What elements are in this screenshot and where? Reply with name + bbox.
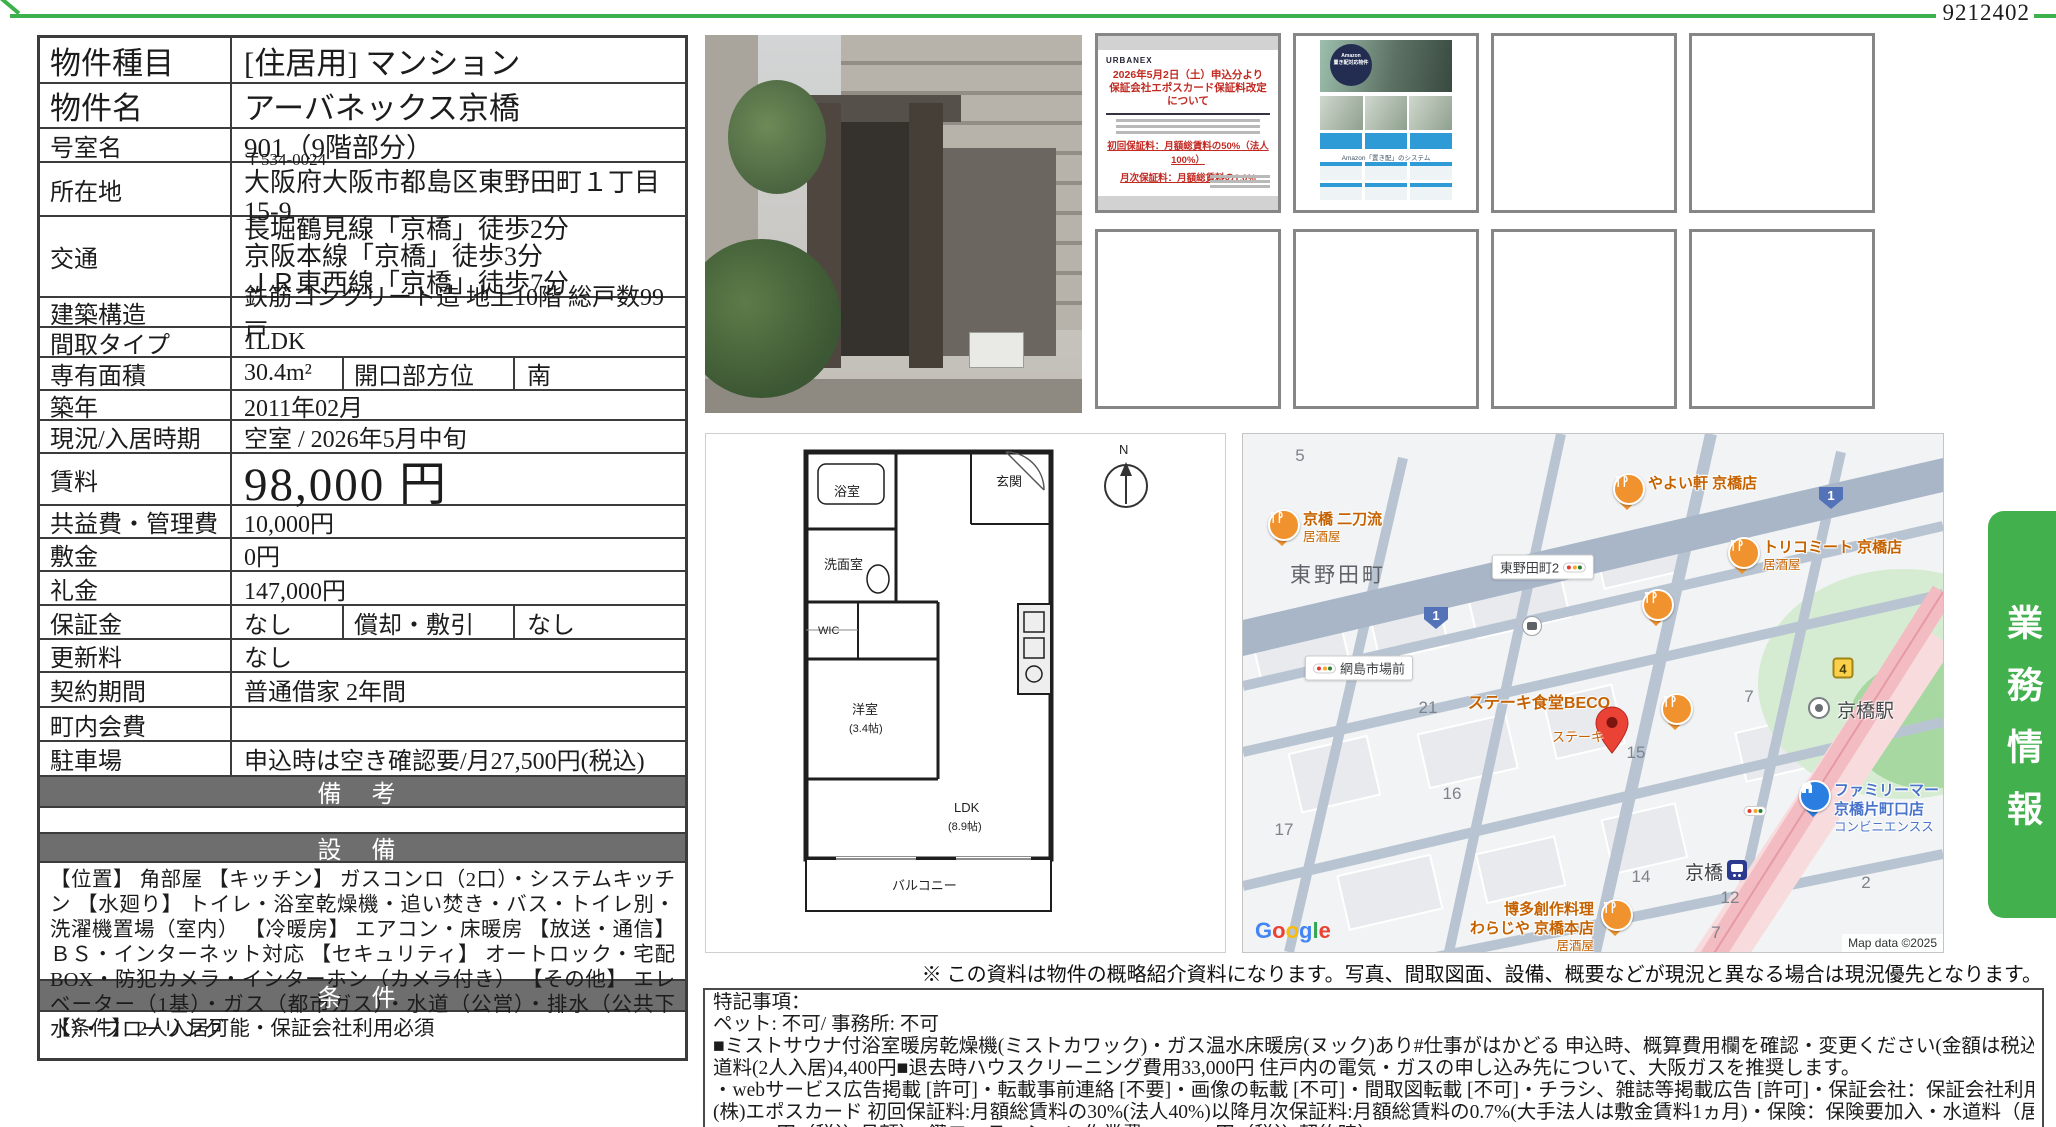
row-label: 礼金 [40,572,232,604]
row-label: 間取タイプ [40,328,232,356]
table-row: 号室名901（9階部分） [40,129,685,163]
poi-label: ファミリーマー京橋片町口店コンビニエンスス [1834,782,1939,835]
expressway-shield: 4 [1833,658,1854,679]
block-number: 5 [1295,446,1304,466]
row-value: [住居用] マンション [232,38,685,82]
traffic-light-icon [1744,806,1767,816]
traffic-light-icon [1563,562,1586,572]
note-line: 道料(2人入居)4,400円■退去時ハウスクリーニング費用33,000円 住戸内… [713,1058,2034,1080]
block-number: 17 [1275,820,1294,840]
thumb-rate-1: 初回保証料：月額総賃料の50%（法人100%） [1106,138,1270,166]
table-row: 更新料なし [40,640,685,673]
row-label: 物件種目 [40,38,232,82]
poi-label: トリコミート 京橋店居酒屋 [1763,539,1902,573]
row-value: 30.4m² [232,358,342,389]
label-room-size: (3.4帖) [849,722,883,735]
table-row: 所在地〒534-0024大阪府大阪市都島区東野田町１丁目15-9 [40,163,685,217]
poi-label: やよい軒 京橋店 [1648,475,1757,494]
bus-icon [1522,616,1542,636]
photo-tree [728,80,826,193]
side-tab-label: 業務情報 [1996,578,2048,852]
thumbnail-empty [1293,229,1479,409]
row-value: 10,000円 [232,506,685,537]
thumb-brand: URBANEX [1106,56,1270,65]
thumbnail-empty [1689,33,1875,213]
route-shield: 1 [1819,487,1843,509]
row-value: なし [232,606,342,638]
map-markers: 5京橋 二刀流居酒屋やよい軒 京橋店1トリコミート 京橋店居酒屋東野田町東野田町… [1243,434,1943,952]
poi-label: 京橋 二刀流居酒屋 [1303,511,1382,545]
row-value-2: 南 [515,358,685,389]
label-balcony: バルコニー [892,878,957,893]
block-number: 15 [1627,743,1646,763]
row-label: 築年 [40,391,232,419]
block-number: 21 [1419,698,1438,718]
district-label: 東野田町 [1290,559,1386,589]
thumbnail-notice-doc: URBANEX 2026年5月2日（土）申込分より 保証会社エポスカード保証料改… [1095,33,1281,213]
traffic-light-icon [1313,663,1336,673]
thumbnail-brochure: Amazon 置き配対応物件 Amazon「置き配」のシステム [1293,33,1479,213]
row-label-2: 償却・敷引 [342,606,515,638]
row-value: なし [232,640,685,671]
row-label: 物件名 [40,84,232,127]
table-row: 築年2011年02月 [40,391,685,421]
restaurant-icon [1642,589,1674,621]
table-row: 町内会費 [40,708,685,742]
table-row: 物件種目[住居用] マンション [40,38,685,84]
postal-code: 〒534-0024 [244,151,326,169]
location-map: 5京橋 二刀流居酒屋やよい軒 京橋店1トリコミート 京橋店居酒屋東野田町東野田町… [1242,433,1944,953]
property-table: 物件種目[住居用] マンション物件名アーバネックス京橋号室名901（9階部分）所… [37,35,688,1061]
compass-n: N [1119,442,1128,457]
row-value: アーバネックス京橋 [232,84,685,127]
row-value: 鉄筋コンクリート造 地上10階 総戸数99戸 [232,298,685,326]
table-row: 【条件】 2人入居可能・保証会社利用必須 [40,1012,685,1058]
thumbnail-empty [1491,33,1677,213]
property-sheet: 9212402 物件種目[住居用] マンション物件名アーバネックス京橋号室名90… [0,0,2056,1127]
special-notes: 特記事項：ペット: 不可/ 事務所: 不可■ミストサウナ付浴室暖房乾燥機(ミスト… [703,988,2044,1127]
row-value: 147,000円 [232,572,685,604]
row-value [232,708,685,740]
accent-line-right [2034,14,2056,18]
row-value: 0円 [232,539,685,570]
google-logo: Google [1255,918,1331,944]
table-row: 間取タイプ1LDK [40,328,685,358]
disclaimer: ※ この資料は物件の概略紹介資料になります。写真、間取図面、設備、概要などが現況… [922,958,2042,987]
restaurant-icon [1601,899,1633,931]
row-value: 98,000 円 [232,454,685,504]
station-icon [1808,697,1830,719]
side-tab-business-info: 業務情報 [1988,511,2056,918]
thumb-title-1: 2026年5月2日（土）申込分より [1106,69,1270,82]
row-value: 2011年02月 [232,391,685,419]
table-row: 保証金なし償却・敷引なし [40,606,685,640]
table-row: 駐車場申込時は空き確認要/月27,500円(税込) [40,742,685,777]
thumbnail-empty [1095,229,1281,409]
row-label: 契約期間 [40,673,232,706]
poi-text: ステーキ食堂BECO [1468,689,1610,713]
block-number: 14 [1632,867,1651,887]
note-line: 特記事項： [713,992,2034,1014]
table-row: 契約期間普通借家 2年間 [40,673,685,708]
row-value: 1LDK [232,328,685,356]
thumbnail-empty [1689,229,1875,409]
block-number: 12 [1721,888,1740,908]
table-row: 【位置】 角部屋 【キッチン】 ガスコンロ（2口）・システムキッチン 【水廻り】… [40,863,685,981]
floor-plan: N 浴室 玄関 洗面室 WIC 洋室 (3.4帖) LDK (8.9帖) バルコ… [705,433,1226,953]
row-label: 保証金 [40,606,232,638]
block-number: 7 [1744,687,1753,707]
row-label: 専有面積 [40,358,232,389]
note-line: ペット: 不可/ 事務所: 不可 [713,1014,2034,1036]
section-bar: 備 考 [40,777,685,808]
accent-corner [0,0,20,15]
block-number: 2 [1861,873,1870,893]
station-label: 京橋駅 [1837,696,1894,723]
row-label: 建築構造 [40,298,232,326]
table-row: 礼金147,000円 [40,572,685,606]
thumbnail-grid: URBANEX 2026年5月2日（土）申込分より 保証会社エポスカード保証料改… [1095,33,1875,409]
restaurant-icon [1268,509,1300,541]
table-row: 物件名アーバネックス京橋 [40,84,685,129]
thumbnail-empty [1491,229,1677,409]
row-label: 敷金 [40,539,232,570]
restaurant-icon [1661,693,1693,725]
row-label: 駐車場 [40,742,232,775]
photo-sign [969,332,1024,368]
restaurant-icon [1613,473,1645,505]
row-label: 所在地 [40,163,232,215]
row-value-2: なし [515,606,685,638]
row-value: 申込時は空き確認要/月27,500円(税込) [232,742,685,775]
building-photo [705,35,1082,413]
label-bath: 浴室 [834,484,860,499]
traffic-light [1744,800,1767,818]
table-row: 専有面積30.4m²開口部方位南 [40,358,685,391]
note-line: (株)エポスカード 初回保証料:月額総賃料の30%(法人40%)以降月次保証料:… [713,1102,2034,1124]
photo-inner [943,148,1056,356]
block-number: 16 [1443,784,1462,804]
accent-line [10,14,1936,18]
restaurant-icon [1728,537,1760,569]
doc-number: 9212402 [1943,0,2031,26]
note-line: ■ミストサウナ付浴室暖房乾燥機(ミストカワック)・ガス温水床暖房(ヌック)あり#… [713,1036,2034,1058]
row-value: 〒534-0024大阪府大阪市都島区東野田町１丁目15-9 [232,163,685,215]
label-wic: WIC [818,625,839,637]
photo-entrance-glass [841,122,909,356]
note-line: ・webサービス広告掲載 [許可]・転載事前連絡 [不要]・画像の転載 [不可]… [713,1080,2034,1102]
metro-label: 京橋 [1685,858,1723,885]
table-row: 共益費・管理費10,000円 [40,506,685,539]
row-label: 共益費・管理費 [40,506,232,537]
table-row: 建築構造鉄筋コンクリート造 地上10階 総戸数99戸 [40,298,685,328]
amazon-badge: Amazon 置き配対応物件 [1330,44,1372,86]
photo-pillar [909,103,943,368]
transport-line: 長堀鶴見線「京橋」徒歩2分 [244,216,569,243]
poi-label: 博多創作料理わらじや 京橋本店居酒屋 [1470,901,1594,953]
row-label: 更新料 [40,640,232,671]
row-value: 普通借家 2年間 [232,673,685,706]
row-label: 号室名 [40,129,232,161]
brochure-caption: Amazon「置き配」のシステム [1296,152,1476,162]
route-shield: 1 [1424,607,1448,629]
table-row: 賃料98,000 円 [40,454,685,506]
thumb-title-2: 保証会社エポスカード保証料改定について [1106,82,1270,108]
table-row: 敷金0円 [40,539,685,572]
row-label: 現況/入居時期 [40,421,232,452]
label-ldk-size: (8.9帖) [948,820,982,833]
row-label: 交通 [40,217,232,296]
row-label: 賃料 [40,454,232,504]
row-label-2: 開口部方位 [342,358,515,389]
store-icon [1799,780,1831,812]
bus-stop-label: 東野田町2 [1492,555,1594,580]
block-number: 7 [1711,923,1720,943]
bus-stop-label: 網島市場前 [1305,656,1413,681]
row-label: 町内会費 [40,708,232,740]
label-wash: 洗面室 [824,557,863,572]
section-bar: 設 備 [40,834,685,863]
transport-line: 京阪本線「京橋」徒歩3分 [244,243,543,270]
metro-icon [1727,860,1747,880]
label-genkan: 玄関 [996,474,1022,489]
label-ldk: LDK [954,800,980,815]
map-copyright: Map data ©2025 [1842,934,1943,952]
label-room: 洋室 [852,702,878,717]
poi-text-small: ステーキ [1552,727,1604,746]
